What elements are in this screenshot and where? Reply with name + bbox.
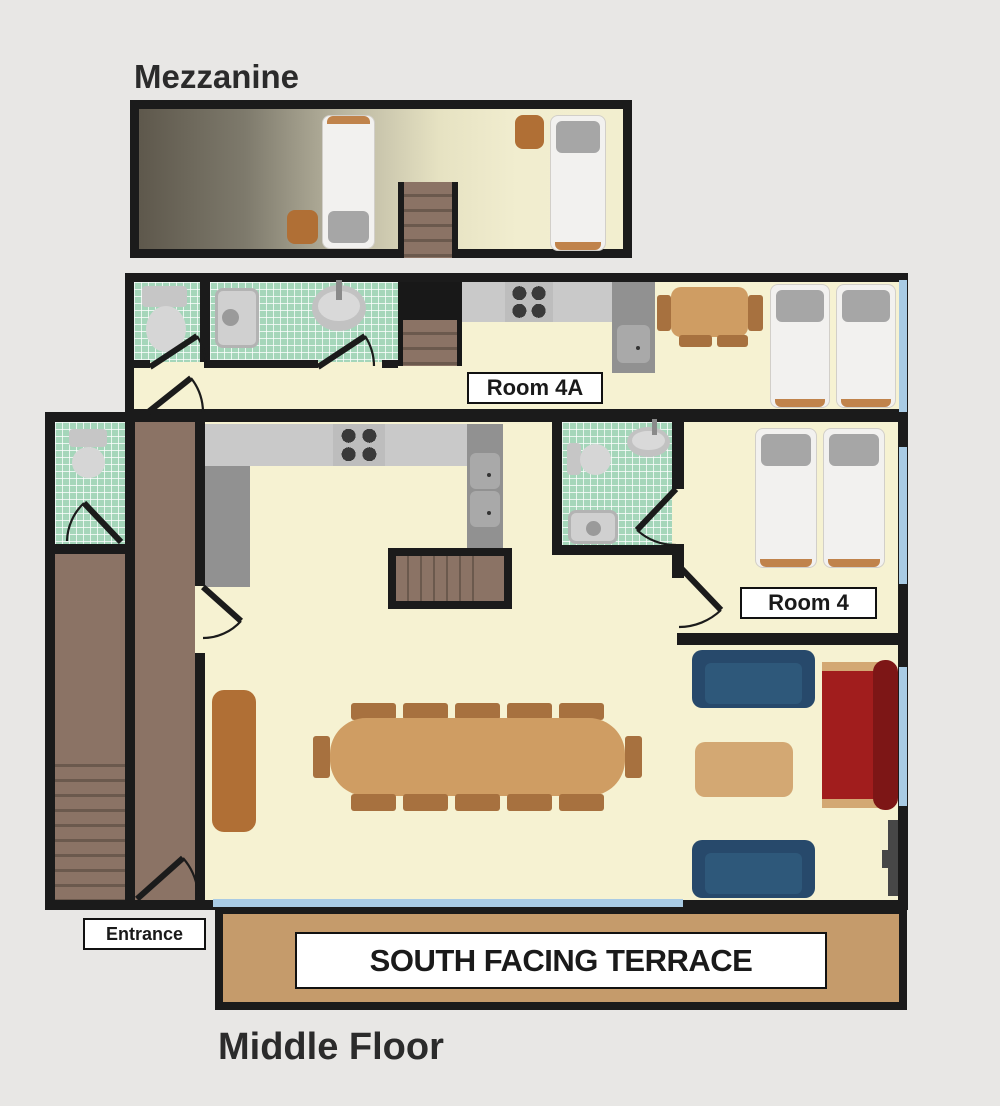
bed-foot-board [760,559,812,567]
dining-chair [351,794,396,811]
sofa-blue [692,650,815,708]
sofa-red-backrest [873,660,898,810]
room-4a-label: Room 4A [467,372,603,404]
bed-pillow [761,434,811,466]
stairs-to-mezzanine [403,320,457,366]
kitchen-sink [470,491,500,527]
kitchen-sink [470,453,500,489]
toilet-tank [567,443,581,475]
dining-table [671,287,748,337]
toilet-bowl [72,447,105,478]
wall-segment [677,633,898,645]
bed-pillow [842,290,890,322]
dining-chair [403,794,448,811]
wall-segment [552,422,562,555]
sideboard [212,690,256,832]
large-dining-table [330,718,625,796]
shower-handle [586,521,601,536]
bed-foot-board [775,399,825,407]
wall-segment [204,360,318,368]
bed-foot-board [327,116,370,124]
wall-tv-mount [882,850,890,868]
dining-chair [717,335,748,347]
sofa-red-armrest [822,662,878,671]
sofa-blue [692,840,815,898]
window [899,447,907,584]
dining-chair [455,794,500,811]
single-bed [770,284,830,408]
dining-chair [657,295,671,331]
wall-segment [125,422,135,900]
stove-top [505,282,553,322]
dining-chair [507,794,552,811]
middle-floor-area: Room 4 [45,412,908,910]
dining-chair [748,295,763,331]
staircase-down [55,752,125,900]
bed-pillow [776,290,824,322]
wall-segment [672,544,684,578]
window [899,667,907,806]
floor-plan-page: Mezzanine [0,0,1000,1106]
wall-segment [55,544,135,554]
sink-tap [336,280,342,300]
wall-segment [382,360,398,368]
mezzanine-bed-right [550,115,606,251]
stove-top [333,424,385,466]
entrance-corridor [135,422,195,900]
bed-pillow [556,121,600,153]
wall-segment [672,422,684,489]
dining-chair [625,736,642,778]
shower-handle [222,309,239,326]
terrace-label: SOUTH FACING TERRACE [295,932,827,989]
toilet-bowl [146,306,186,352]
middle-floor-title: Middle Floor [218,1026,444,1069]
terrace-doors [213,899,683,907]
kitchen-sink [617,325,650,363]
kitchen-counter-column [205,466,250,587]
wall-segment [200,282,210,362]
single-bed [755,428,817,568]
bed-pillow [829,434,879,466]
sink-tap [652,419,657,435]
single-bed [836,284,896,408]
mezzanine-bed-left [322,115,375,249]
dining-chair [559,794,604,811]
room-4a-strip: Room 4A [125,273,908,418]
central-staircase-frame [388,548,512,609]
sofa-red-armrest [822,799,878,808]
wall-segment [134,360,150,368]
wall-segment [552,545,684,555]
entrance-label: Entrance [83,918,206,950]
staircase-landing [476,556,504,601]
window [899,280,907,412]
toilet-tank [142,286,187,307]
coffee-table [695,742,793,797]
room-4-label: Room 4 [740,587,877,619]
mezzanine-room [130,100,632,258]
bathroom-sink [627,427,670,457]
mezzanine-title: Mezzanine [134,58,299,96]
dining-chair [313,736,330,778]
dining-chair [679,335,712,347]
toilet-bowl [580,444,611,475]
toilet-tank [69,429,107,447]
wall-segment [195,653,205,900]
bed-foot-board [841,399,891,407]
mezzanine-nightstand-right [515,115,544,149]
mezzanine-stairs [398,182,458,258]
sofa-red-seat [822,662,878,808]
bed-pillow [328,211,369,243]
terrace: SOUTH FACING TERRACE [215,906,907,1010]
bed-foot-board [828,559,880,567]
wall-segment [195,422,205,586]
mezzanine-nightstand-left [287,210,318,244]
single-bed [823,428,885,568]
bed-foot-board [555,242,601,250]
